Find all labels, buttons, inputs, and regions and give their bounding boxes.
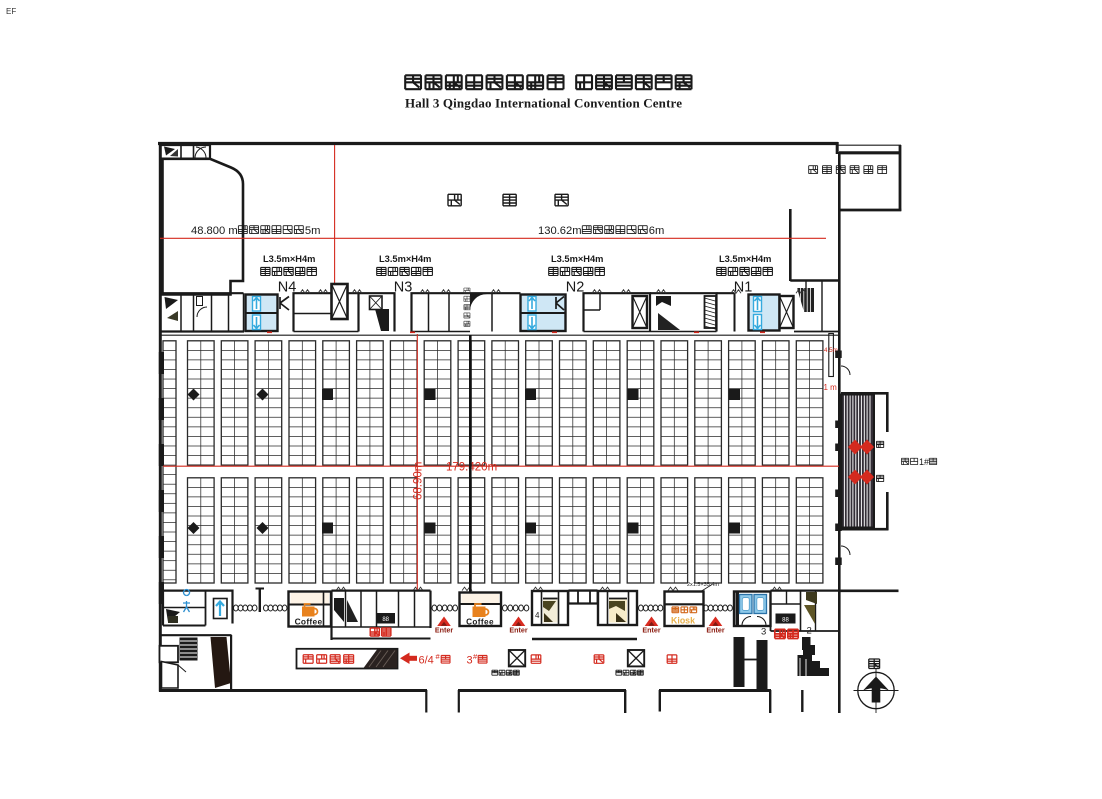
svg-text:6/4: 6/4 — [419, 655, 434, 667]
svg-text:N2: N2 — [566, 280, 585, 296]
svg-text:1 m: 1 m — [824, 383, 838, 392]
svg-text:130.62m: 130.62m — [538, 225, 582, 237]
svg-text:N3: N3 — [394, 280, 413, 296]
svg-text:4: 4 — [535, 611, 540, 620]
svg-text:88: 88 — [782, 618, 789, 624]
svg-text:L3.5m×H4m: L3.5m×H4m — [379, 254, 431, 264]
svg-text:L3.5m×H4m: L3.5m×H4m — [263, 254, 315, 264]
svg-text:Enter: Enter — [509, 625, 528, 634]
svg-text:Enter: Enter — [642, 625, 661, 634]
svg-text:EF: EF — [6, 7, 16, 16]
svg-text:Hall 3 Qingdao International C: Hall 3 Qingdao International Convention … — [405, 96, 682, 111]
svg-text:2: 2 — [807, 626, 812, 637]
svg-text:6m: 6m — [649, 225, 665, 237]
svg-text:1#: 1# — [919, 457, 929, 467]
svg-text:48.800 m: 48.800 m — [191, 225, 238, 237]
svg-text:Coffee: Coffee — [466, 618, 494, 627]
svg-text:3: 3 — [761, 627, 766, 638]
svg-text:L3.5m×H4m: L3.5m×H4m — [551, 254, 603, 264]
svg-text:Kiosk: Kiosk — [671, 616, 695, 626]
svg-text:5m: 5m — [305, 225, 321, 237]
svg-text:Coffee: Coffee — [295, 617, 323, 627]
svg-text:2x1.5×35.4m: 2x1.5×35.4m — [687, 582, 719, 588]
svg-text:68.90m: 68.90m — [413, 462, 425, 500]
svg-text:L3.5m×H4m: L3.5m×H4m — [719, 254, 771, 264]
svg-text:88: 88 — [382, 617, 389, 623]
svg-text:3: 3 — [467, 655, 473, 667]
svg-text:Enter: Enter — [435, 625, 454, 634]
svg-text:Enter: Enter — [706, 625, 725, 634]
